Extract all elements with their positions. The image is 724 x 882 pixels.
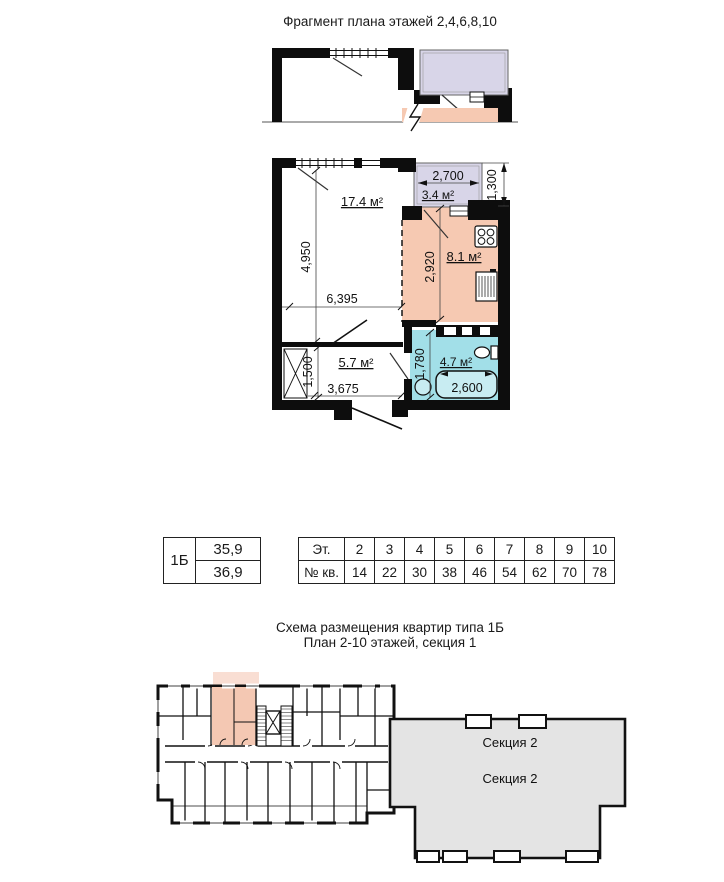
building-plan-drawing: Секция 2 Секция 2: [145, 663, 720, 879]
floor-header: Эт.: [299, 538, 345, 561]
floor-plan-page: { "titles": { "fragment": "Фрагмент план…: [0, 0, 724, 882]
living-area-label: 17.4 м²: [341, 194, 384, 209]
vent-slots: [444, 327, 490, 335]
apartment-header: № кв.: [299, 561, 345, 584]
kitchen-area-label: 8.1 м²: [447, 249, 483, 264]
dim-bath-width: 2,600: [451, 381, 482, 395]
floors-table: Эт. 2 3 4 5 6 7 8 9 10 № кв. 14 22 30 38…: [298, 537, 615, 584]
toilet-icon: [475, 346, 499, 359]
living-hall-door: [332, 320, 367, 344]
dim-hall-width: 3,675: [327, 382, 358, 396]
fragment-plan-title: Фрагмент плана этажей 2,4,6,8,10: [240, 14, 540, 29]
apartment-plan-drawing: 17.4 м² 3.4 м² 8.1 м² 5.7 м² 4.7 м² 2,70…: [265, 150, 515, 440]
fragment-window: [330, 47, 388, 76]
balcony-area-label: 3.4 м²: [422, 188, 454, 202]
bath-area-label: 4.7 м²: [440, 355, 472, 369]
floors-row: Эт. 2 3 4 5 6 7 8 9 10: [299, 538, 615, 561]
hall-area-label: 5.7 м²: [339, 355, 375, 370]
stove-icon: [475, 226, 497, 247]
scheme-title: Схема размещения квартир типа 1Б План 2-…: [215, 621, 565, 650]
dim-bath-height: 1,780: [413, 348, 427, 379]
sink-icon: [415, 379, 431, 395]
type-table-type-cell: 1Б: [164, 538, 196, 583]
highlighted-apartment: [212, 687, 256, 746]
bathroom-door: [390, 353, 408, 379]
scheme-title-line1: Схема размещения квартир типа 1Б: [215, 621, 565, 636]
dim-balcony-depth: 1,300: [485, 169, 499, 200]
dim-balcony-width: 2,700: [432, 169, 463, 183]
living-window: [296, 157, 380, 190]
kitchen-room: [402, 206, 498, 322]
apartments-row: № кв. 14 22 30 38 46 54 62 70 78: [299, 561, 615, 584]
elevator-icon: [266, 711, 280, 734]
dim-living-height: 4,950: [299, 241, 313, 272]
sink-cabinet-icon: [476, 269, 497, 301]
section2-label-1: Секция 2: [483, 735, 538, 750]
dim-kitchen-height: 2,920: [423, 251, 437, 282]
scheme-title-line2: План 2-10 этажей, секция 1: [215, 636, 565, 651]
section2-label-2: Секция 2: [483, 771, 538, 786]
dim-hall-height: 1,500: [301, 356, 315, 387]
total-area-value: 36,9: [196, 561, 260, 583]
fragment-balcony: [420, 50, 508, 95]
type-table: 1Б 35,9 36,9: [163, 537, 261, 584]
living-area-value: 35,9: [196, 538, 260, 561]
apartment-type-label: 1Б: [170, 552, 188, 569]
fragment-plan-drawing: [260, 38, 520, 138]
dim-living-width: 6,395: [326, 292, 357, 306]
